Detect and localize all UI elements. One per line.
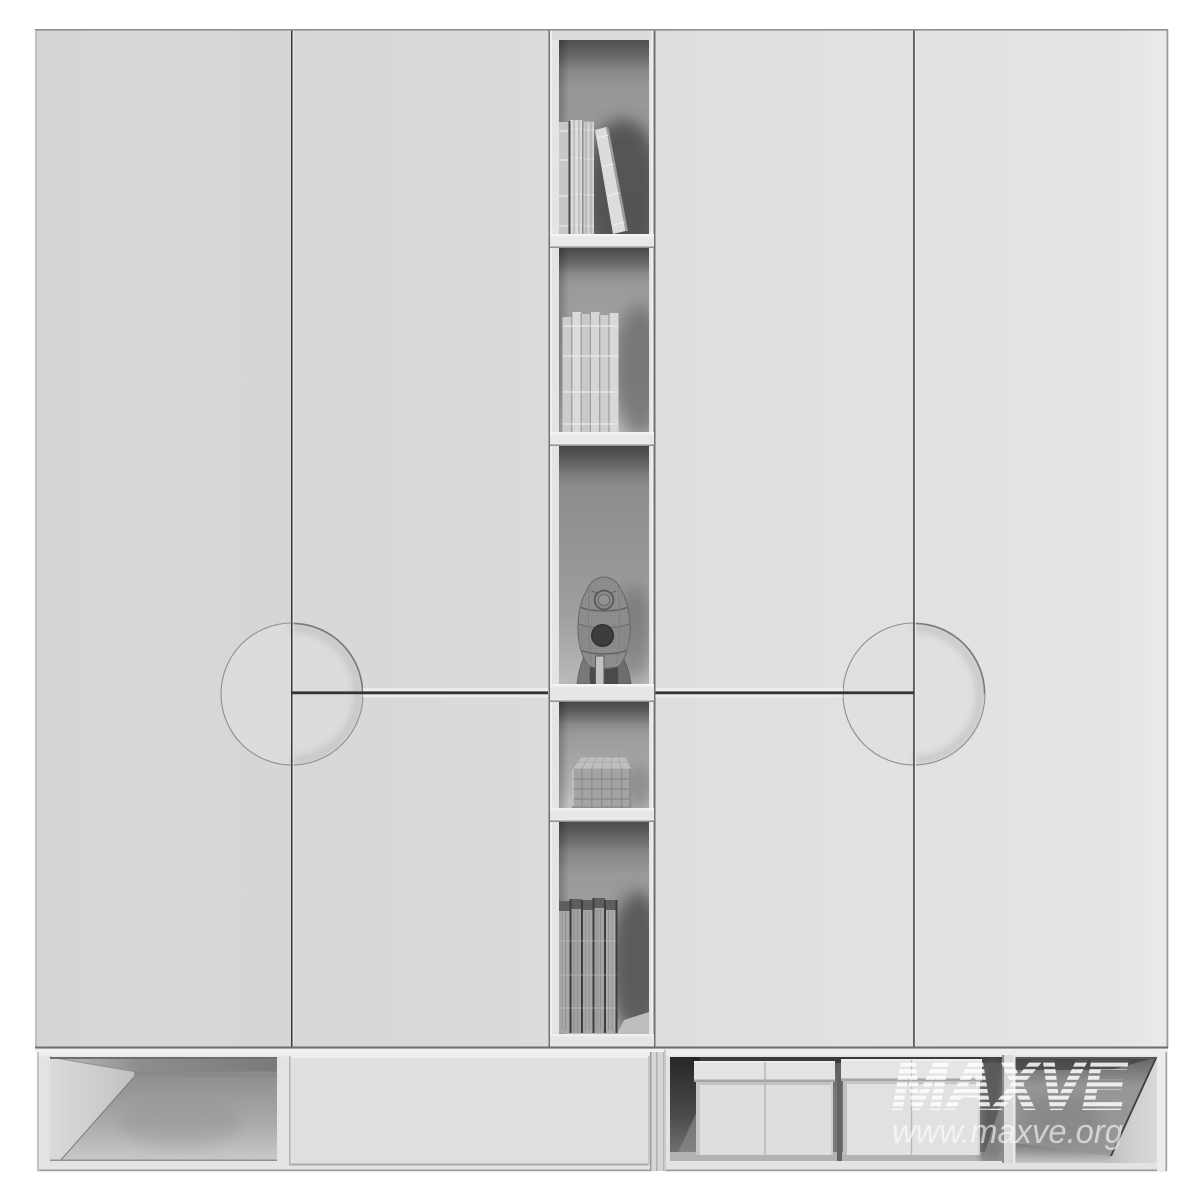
svg-text:www.maxve.org: www.maxve.org: [892, 1113, 1123, 1151]
